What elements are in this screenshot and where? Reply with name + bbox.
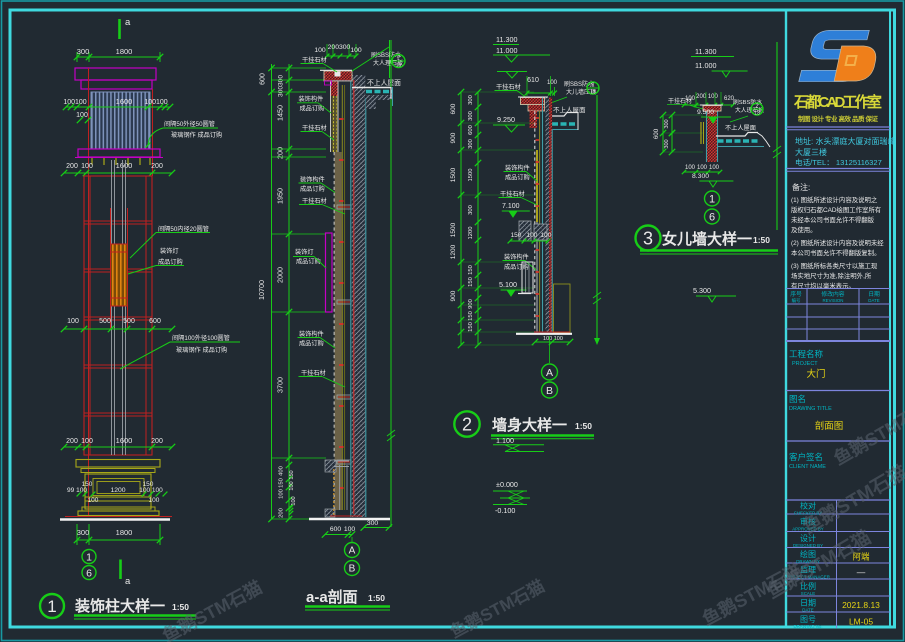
svg-text:装饰构件: 装饰构件	[300, 176, 325, 184]
svg-text:装饰构件: 装饰构件	[505, 164, 530, 172]
svg-text:装饰构件: 装饰构件	[299, 95, 324, 103]
svg-text:1800: 1800	[116, 528, 133, 537]
svg-text:干挂石材: 干挂石材	[302, 197, 327, 205]
svg-text:100: 100	[527, 232, 538, 239]
svg-text:不上人屋面: 不上人屋面	[553, 105, 586, 114]
svg-text:300300: 300300	[278, 75, 285, 97]
svg-text:300: 300	[468, 139, 474, 149]
svg-text:300: 300	[468, 205, 474, 215]
svg-text:13: 13	[590, 90, 596, 95]
svg-text:900: 900	[450, 132, 457, 143]
svg-text:11.000: 11.000	[695, 61, 716, 70]
svg-text:6: 6	[709, 211, 715, 223]
svg-text:-0.100: -0.100	[495, 506, 515, 515]
svg-text:100: 100	[88, 497, 99, 504]
svg-text:1: 1	[709, 193, 715, 205]
svg-text:1800: 1800	[116, 47, 133, 56]
svg-text:(2) 图纸所述设计内容及说明未经: (2) 图纸所述设计内容及说明未经	[791, 238, 884, 247]
svg-text:石都CAD工作室: 石都CAD工作室	[793, 93, 882, 111]
svg-text:DRAWING No.: DRAWING No.	[793, 624, 822, 629]
svg-text:200: 200	[151, 163, 163, 170]
svg-text:a: a	[125, 17, 131, 28]
svg-text:装饰构件: 装饰构件	[299, 330, 324, 338]
svg-text:150: 150	[511, 232, 522, 239]
svg-text:日期: 日期	[868, 291, 880, 298]
svg-text:DATE: DATE	[802, 608, 813, 613]
svg-text:600: 600	[149, 318, 161, 325]
svg-text:a: a	[125, 576, 131, 587]
svg-text:1:50: 1:50	[368, 593, 385, 603]
svg-text:9.250: 9.250	[497, 115, 515, 124]
svg-text:1: 1	[47, 597, 56, 616]
svg-text:150: 150	[289, 470, 295, 479]
svg-text:成品订购: 成品订购	[158, 258, 183, 266]
svg-text:150: 150	[468, 311, 474, 321]
svg-text:SCALE: SCALE	[801, 591, 815, 596]
svg-text:5.300: 5.300	[693, 286, 711, 295]
svg-text:100: 100	[279, 489, 285, 499]
svg-text:PROJECT: PROJECT	[792, 361, 818, 367]
svg-text:100: 100	[697, 165, 708, 171]
svg-text:100: 100	[547, 80, 558, 86]
svg-text:成品订购: 成品订购	[300, 105, 325, 113]
svg-text:300: 300	[468, 111, 474, 121]
svg-text:200: 200	[66, 438, 78, 445]
svg-text:100100: 100100	[144, 99, 167, 106]
svg-text:日期: 日期	[800, 599, 816, 608]
svg-text:1500: 1500	[450, 167, 457, 182]
svg-text:600: 600	[260, 73, 267, 85]
svg-text:(1) 图纸所述设计内容及说明之: (1) 图纸所述设计内容及说明之	[791, 195, 878, 204]
svg-text:成品订购: 成品订购	[505, 174, 530, 182]
svg-text:600: 600	[450, 103, 457, 114]
svg-text:图号: 图号	[800, 615, 816, 624]
svg-text:及使用。: 及使用。	[791, 225, 817, 234]
svg-text:DESIGNED BY: DESIGNED BY	[793, 543, 823, 548]
svg-text:100: 100	[685, 165, 696, 171]
svg-text:2021.8.13: 2021.8.13	[842, 600, 880, 610]
svg-text:200: 200	[66, 163, 78, 170]
svg-text:大厦三楼: 大厦三楼	[795, 147, 827, 157]
svg-text:5.100: 5.100	[499, 280, 517, 289]
svg-text:500: 500	[99, 318, 111, 325]
svg-text:300: 300	[664, 119, 670, 128]
svg-text:300: 300	[367, 520, 379, 527]
svg-text:7.100: 7.100	[502, 203, 520, 210]
svg-text:序号: 序号	[790, 290, 802, 298]
svg-text:1950: 1950	[276, 188, 285, 204]
svg-text:400: 400	[279, 466, 285, 476]
svg-text:1600: 1600	[116, 97, 133, 106]
svg-text:100: 100	[541, 232, 552, 239]
svg-text:工程名称: 工程名称	[789, 349, 824, 359]
svg-text:干挂石材: 干挂石材	[496, 83, 521, 91]
svg-text:300: 300	[77, 47, 90, 56]
svg-text:DATE: DATE	[868, 298, 879, 303]
svg-text:1.100: 1.100	[496, 436, 514, 445]
svg-text:100: 100	[81, 438, 93, 445]
svg-text:不上人屋面: 不上人屋面	[367, 78, 401, 87]
svg-text:版权归石都CAD绘图工作室所有: 版权归石都CAD绘图工作室所有	[791, 205, 881, 214]
svg-text:B: B	[349, 564, 356, 575]
svg-text:100: 100	[67, 318, 79, 325]
svg-text:13: 13	[754, 111, 760, 117]
svg-text:1:50: 1:50	[172, 602, 189, 612]
svg-text:100: 100	[291, 496, 297, 505]
svg-text:A: A	[349, 546, 356, 557]
svg-text:场实地尺寸为准,除注明外,所: 场实地尺寸为准,除注明外,所	[791, 271, 872, 280]
svg-text:100: 100	[314, 47, 326, 54]
svg-text:装饰柱大样一: 装饰柱大样一	[74, 597, 165, 615]
svg-text:600: 600	[653, 128, 660, 139]
svg-text:—: —	[857, 567, 866, 577]
svg-text:13: 13	[396, 63, 402, 68]
svg-text:500: 500	[123, 318, 135, 325]
svg-text:墙身大样一: 墙身大样一	[492, 416, 567, 434]
svg-text:100: 100	[289, 481, 295, 490]
svg-text:150: 150	[468, 265, 474, 275]
svg-text:干挂石材: 干挂石材	[500, 190, 525, 198]
svg-text:9.500: 9.500	[697, 109, 714, 116]
svg-text:11.000: 11.000	[496, 46, 517, 55]
svg-text:1200: 1200	[468, 227, 474, 240]
svg-text:A: A	[546, 367, 553, 379]
svg-text:间隔50外径50圆管: 间隔50外径50圆管	[164, 120, 215, 128]
svg-text:100: 100	[149, 497, 160, 504]
svg-text:间隔50内径20圆管: 间隔50内径20圆管	[158, 225, 209, 233]
svg-text:150: 150	[468, 277, 474, 287]
svg-text:200: 200	[151, 438, 163, 445]
svg-text:2: 2	[462, 414, 472, 434]
svg-text:200300: 200300	[328, 44, 351, 51]
svg-text:1500: 1500	[450, 222, 457, 237]
svg-text:100: 100	[81, 163, 93, 170]
svg-text:1200: 1200	[450, 244, 457, 259]
svg-text:3700: 3700	[276, 377, 285, 393]
svg-text:100: 100	[350, 47, 362, 54]
svg-text:备注:: 备注:	[792, 182, 810, 192]
svg-text:600: 600	[468, 125, 474, 135]
svg-text:地址: 水头漂庭大厦对面瑞峰: 地址: 水头漂庭大厦对面瑞峰	[795, 136, 895, 146]
svg-text:(3) 图纸所标各类尺寸以施工现: (3) 图纸所标各类尺寸以施工现	[791, 261, 878, 270]
svg-text:200: 200	[279, 508, 285, 518]
svg-text:3: 3	[643, 228, 653, 248]
svg-text:a-a剖面: a-a剖面	[306, 588, 358, 606]
svg-text:2: 2	[592, 83, 595, 89]
svg-text:1600: 1600	[116, 161, 133, 170]
svg-text:10700: 10700	[257, 280, 266, 300]
svg-text:1450: 1450	[276, 105, 285, 121]
svg-text:装饰灯: 装饰灯	[160, 247, 179, 255]
svg-text:REVISION: REVISION	[823, 298, 844, 303]
svg-text:CLIENT NAME: CLIENT NAME	[789, 464, 826, 470]
svg-text:未经本公司书面允许不得翻版: 未经本公司书面允许不得翻版	[791, 215, 875, 224]
svg-text:本公司书面允许不得翻版复制。: 本公司书面允许不得翻版复制。	[791, 248, 880, 257]
svg-text:300: 300	[664, 139, 670, 148]
svg-text:间隔100外径100圆管: 间隔100外径100圆管	[172, 334, 230, 342]
svg-text:电话/TEL： 13125116327: 电话/TEL： 13125116327	[795, 157, 882, 167]
svg-text:2: 2	[756, 104, 759, 110]
svg-text:成品订购: 成品订购	[296, 258, 321, 266]
svg-text:900: 900	[468, 299, 474, 309]
svg-text:干挂石材: 干挂石材	[302, 56, 327, 64]
svg-text:LM-05: LM-05	[849, 616, 873, 626]
svg-text:100: 100	[685, 96, 696, 102]
svg-text:女儿墙大样一: 女儿墙大样一	[662, 230, 752, 248]
svg-text:1: 1	[86, 551, 92, 563]
svg-text:图名: 图名	[789, 394, 806, 404]
svg-text:1:50: 1:50	[575, 421, 592, 431]
svg-text:玻璃钢作 成品订购: 玻璃钢作 成品订购	[176, 346, 227, 354]
svg-text:±0.000: ±0.000	[496, 480, 518, 489]
svg-text:成品订购: 成品订购	[300, 185, 325, 193]
svg-text:干挂石材: 干挂石材	[301, 369, 326, 377]
svg-text:制图 设计 专业 高效 品质 保证: 制图 设计 专业 高效 品质 保证	[798, 114, 879, 123]
svg-text:610: 610	[527, 77, 539, 84]
svg-text:DRAWING TITLE: DRAWING TITLE	[789, 406, 832, 412]
svg-text:玻璃钢作 成品订购: 玻璃钢作 成品订购	[171, 131, 222, 139]
svg-text:8.300: 8.300	[692, 173, 709, 180]
svg-text:大人理石板: 大人理石板	[735, 106, 764, 114]
svg-text:99 100: 99 100	[67, 487, 87, 494]
svg-text:剖面图: 剖面图	[815, 420, 844, 432]
svg-text:大门: 大门	[806, 368, 825, 380]
svg-text:2000: 2000	[276, 267, 285, 283]
svg-text:B: B	[546, 385, 553, 397]
svg-text:装饰构件: 装饰构件	[504, 253, 529, 261]
svg-text:1:50: 1:50	[753, 235, 770, 245]
svg-text:100: 100	[709, 165, 720, 171]
svg-text:1500: 1500	[468, 169, 474, 182]
svg-text:不上人屋面: 不上人屋面	[725, 124, 756, 132]
svg-text:300: 300	[468, 95, 474, 105]
svg-text:6: 6	[86, 567, 92, 579]
svg-text:修改内容: 修改内容	[821, 290, 844, 298]
svg-text:成品订购: 成品订购	[504, 263, 529, 271]
svg-text:1600: 1600	[116, 436, 133, 445]
svg-text:150: 150	[468, 322, 474, 332]
svg-text:2: 2	[397, 56, 400, 62]
svg-text:900: 900	[450, 290, 457, 301]
svg-text:客户签名: 客户签名	[789, 452, 823, 462]
svg-text:干挂石材: 干挂石材	[302, 124, 327, 132]
svg-text:150: 150	[279, 478, 285, 488]
svg-text:编号: 编号	[792, 297, 801, 304]
svg-text:100100: 100100	[63, 99, 86, 106]
svg-text:600: 600	[330, 526, 342, 533]
svg-text:11.300: 11.300	[695, 47, 716, 56]
svg-text:11.300: 11.300	[496, 35, 517, 44]
svg-text:1200: 1200	[110, 487, 125, 494]
svg-text:300: 300	[77, 528, 90, 537]
svg-text:成品订购: 成品订购	[299, 340, 324, 348]
svg-text:装饰灯: 装饰灯	[295, 248, 314, 256]
svg-text:校对: 校对	[800, 501, 816, 511]
